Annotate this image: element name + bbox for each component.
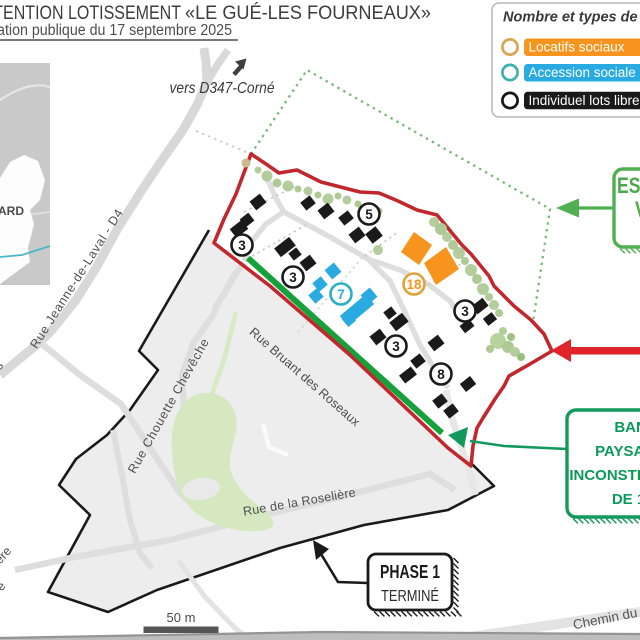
svg-text:INCONSTRUCTIBLE: INCONSTRUCTIBLE (569, 467, 640, 484)
svg-text:TERMINÉ: TERMINÉ (381, 586, 439, 605)
svg-text:PHASE 1: PHASE 1 (380, 562, 440, 582)
svg-text:Nombre et types de logements: Nombre et types de logements (503, 10, 640, 26)
svg-text:Individuel lots libres: Individuel lots libres (529, 93, 640, 108)
svg-text:50 m: 50 m (167, 610, 196, 625)
svg-text:3: 3 (461, 304, 469, 319)
svg-text:3: 3 (392, 339, 400, 354)
svg-text:Présentation publique du 17 se: Présentation publique du 17 septembre 20… (0, 22, 232, 39)
svg-text:3: 3 (289, 270, 297, 285)
svg-text:PAYSAGÈRE: PAYSAGÈRE (595, 443, 640, 460)
svg-text:ESPACE: ESPACE (617, 174, 640, 198)
svg-text:5: 5 (365, 207, 373, 222)
svg-text:3: 3 (238, 238, 246, 253)
svg-text:ATTENTION LOTISSEMENT: ATTENTION LOTISSEMENT (0, 2, 181, 24)
svg-text:Accession sociale: Accession sociale (529, 65, 636, 80)
svg-text:Locatifs sociaux: Locatifs sociaux (529, 40, 625, 55)
svg-text:DE 10 M: DE 10 M (612, 491, 640, 508)
svg-text:«LE GUÉ-LES FOURNEAUX»: «LE GUÉ-LES FOURNEAUX» (185, 1, 431, 24)
svg-text:vers D347-Corné: vers D347-Corné (170, 80, 275, 97)
svg-text:BANDE: BANDE (614, 419, 640, 436)
svg-text:8: 8 (437, 367, 445, 382)
svg-text:ARD: ARD (0, 204, 24, 218)
svg-text:VERT: VERT (635, 198, 640, 222)
svg-text:7: 7 (337, 287, 345, 302)
svg-text:18: 18 (406, 277, 422, 292)
